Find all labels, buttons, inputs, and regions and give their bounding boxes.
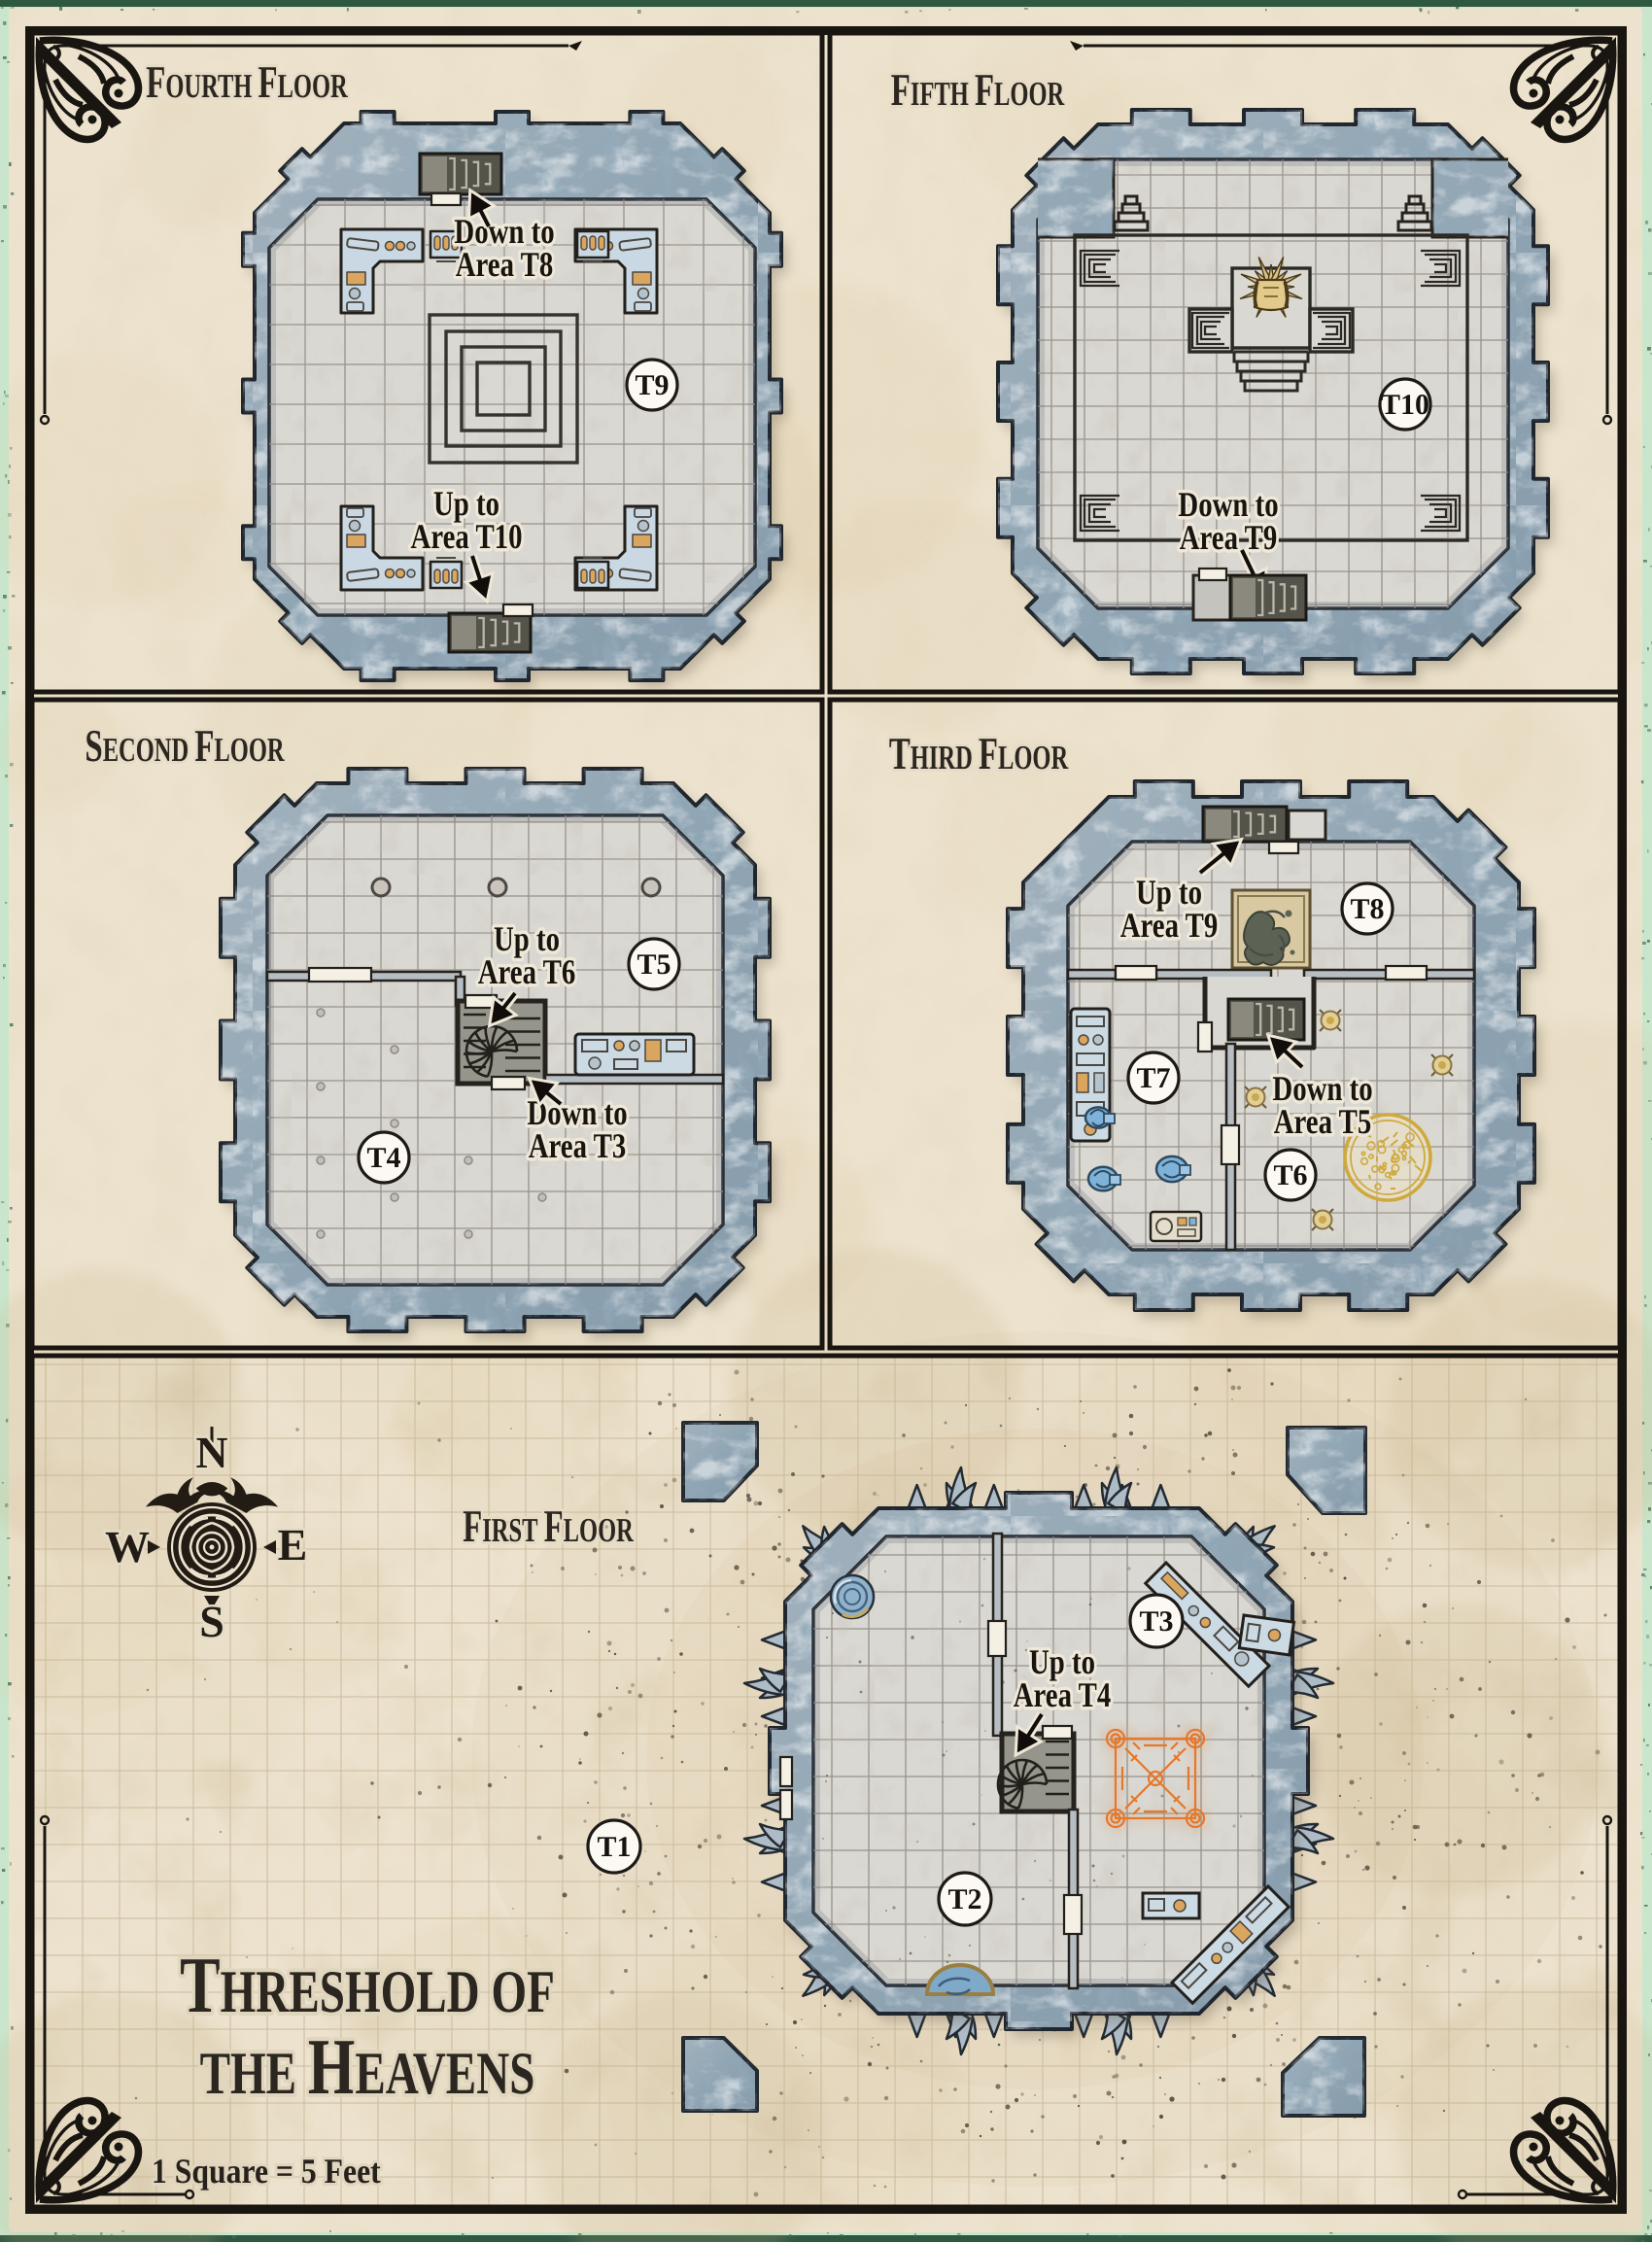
svg-text:N: N [195,1428,227,1477]
svg-text:T1: T1 [597,1831,631,1863]
svg-text:Down toArea T9: Down toArea T9 [1178,485,1278,557]
svg-text:Down toArea T5: Down toArea T5 [1272,1069,1372,1141]
svg-text:Down toArea T8: Down toArea T8 [454,212,554,284]
svg-text:E: E [278,1520,308,1569]
svg-text:1 Square = 5 Feet: 1 Square = 5 Feet [152,2152,381,2190]
svg-text:T6: T6 [1273,1159,1307,1191]
svg-text:T5: T5 [637,949,671,981]
svg-text:T7: T7 [1136,1062,1170,1094]
svg-text:Down toArea T3: Down toArea T3 [527,1093,627,1165]
svg-text:T3: T3 [1139,1605,1173,1638]
svg-text:S: S [199,1597,224,1646]
svg-text:T8: T8 [1350,893,1384,925]
svg-text:T4: T4 [366,1142,400,1174]
svg-text:T2: T2 [947,1883,981,1915]
svg-text:W: W [105,1522,150,1571]
svg-text:T9: T9 [635,369,669,401]
svg-text:T10: T10 [1381,389,1429,421]
